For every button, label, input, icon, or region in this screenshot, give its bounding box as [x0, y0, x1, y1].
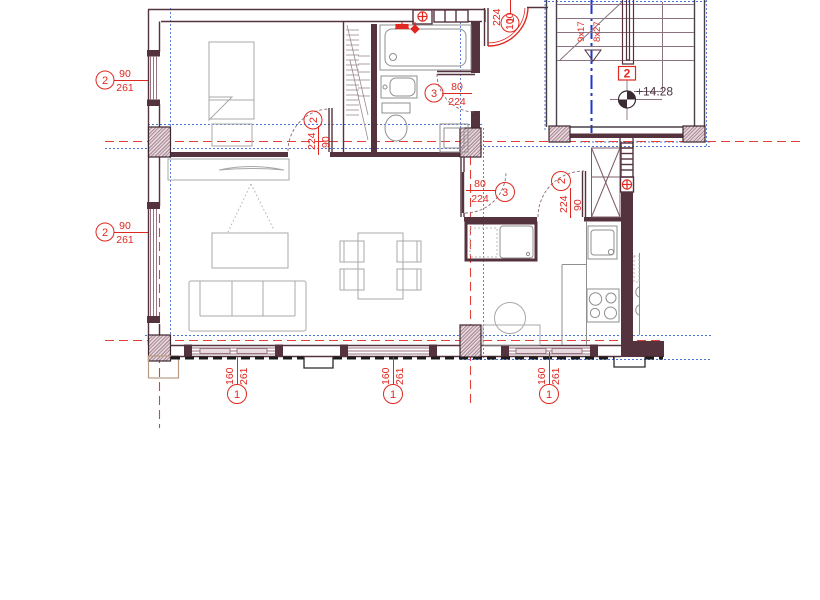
- svg-text:160: 160: [536, 367, 548, 385]
- svg-text:224: 224: [471, 193, 489, 205]
- svg-text:1: 1: [234, 389, 240, 401]
- svg-text:160: 160: [224, 367, 236, 385]
- svg-text:1: 1: [390, 389, 396, 401]
- svg-text:261: 261: [550, 367, 562, 385]
- svg-text:2: 2: [624, 67, 631, 81]
- svg-text:2: 2: [556, 178, 568, 184]
- svg-text:+14.28: +14.28: [636, 85, 673, 99]
- svg-text:3: 3: [502, 187, 508, 199]
- svg-text:261: 261: [394, 367, 406, 385]
- svg-text:80: 80: [474, 178, 486, 190]
- svg-text:224: 224: [491, 8, 503, 26]
- svg-text:2: 2: [102, 227, 108, 239]
- svg-text:90: 90: [119, 220, 131, 232]
- svg-text:90: 90: [320, 136, 332, 148]
- svg-text:2: 2: [102, 75, 108, 87]
- svg-text:9x17: 9x17: [576, 21, 587, 42]
- svg-text:160: 160: [380, 367, 392, 385]
- svg-text:100: 100: [504, 12, 516, 30]
- svg-text:224: 224: [306, 132, 318, 150]
- svg-text:261: 261: [116, 82, 134, 94]
- svg-text:90: 90: [119, 68, 131, 80]
- svg-text:8x27: 8x27: [592, 21, 603, 42]
- svg-text:261: 261: [116, 234, 134, 246]
- svg-text:90: 90: [572, 199, 584, 211]
- svg-text:224: 224: [558, 195, 570, 213]
- svg-text:1: 1: [546, 389, 552, 401]
- svg-text:3: 3: [431, 88, 437, 100]
- svg-text:261: 261: [238, 367, 250, 385]
- svg-text:80: 80: [451, 81, 463, 93]
- svg-text:2: 2: [308, 117, 320, 123]
- svg-text:224: 224: [448, 96, 466, 108]
